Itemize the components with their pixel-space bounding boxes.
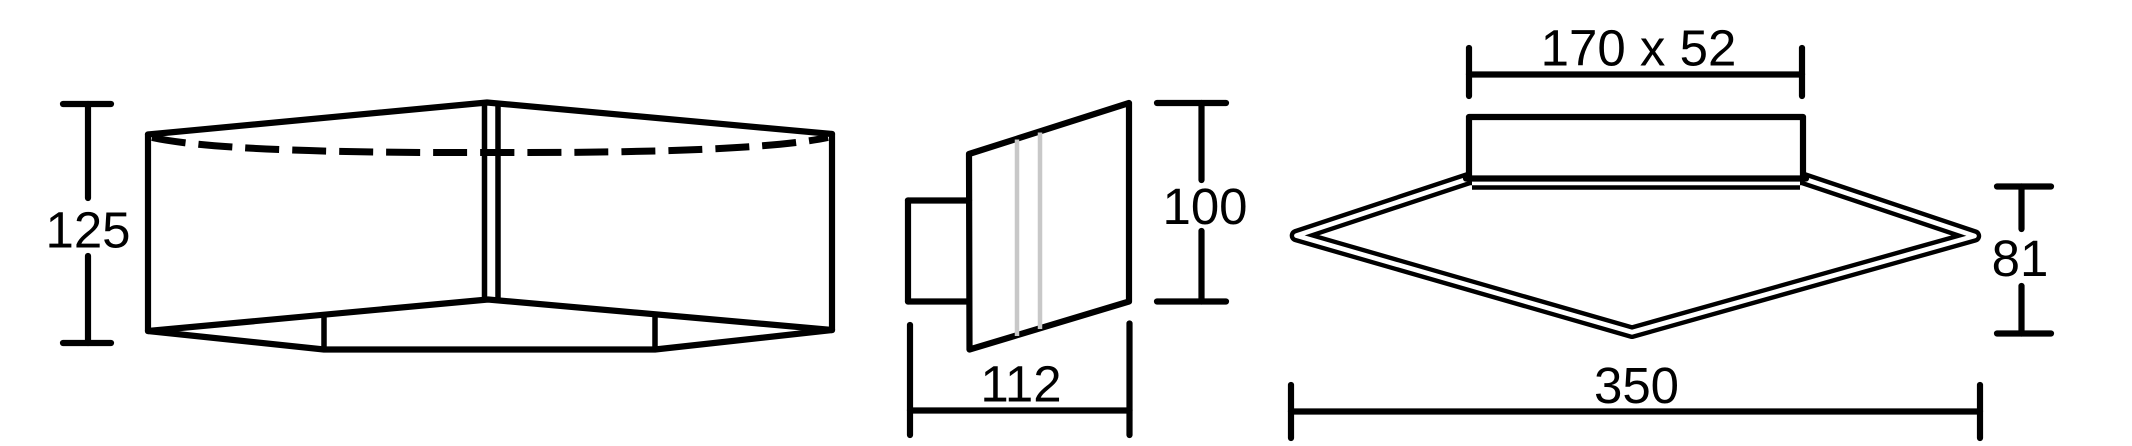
svg-text:125: 125 bbox=[45, 202, 130, 259]
svg-text:170 x 52: 170 x 52 bbox=[1541, 20, 1737, 77]
svg-text:350: 350 bbox=[1594, 357, 1679, 414]
svg-text:100: 100 bbox=[1162, 178, 1247, 235]
svg-text:112: 112 bbox=[980, 356, 1061, 413]
svg-text:81: 81 bbox=[1992, 230, 2049, 287]
